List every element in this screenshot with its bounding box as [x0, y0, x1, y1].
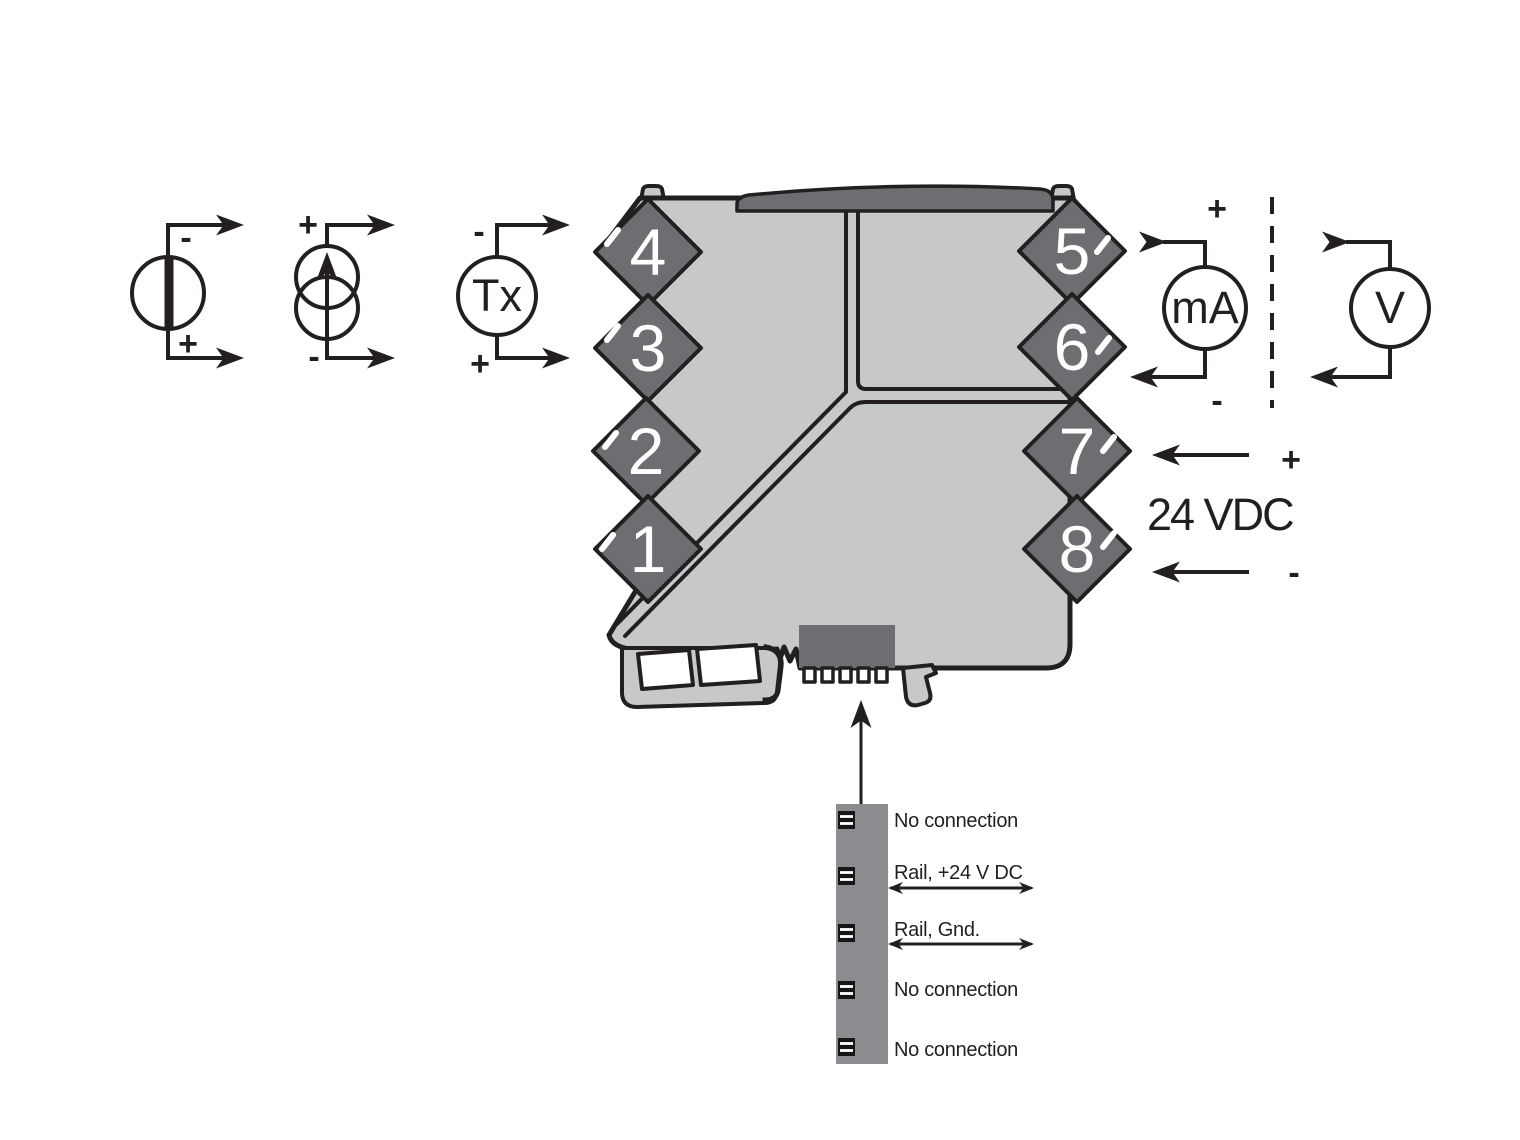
wire [1151, 349, 1205, 377]
polarity-sign: + [470, 345, 490, 383]
polarity-sign: + [1207, 190, 1227, 228]
wire [327, 225, 377, 246]
terminal-number: 2 [628, 414, 665, 488]
milliamp-meter-label: mA [1171, 282, 1239, 333]
bus-pin [822, 668, 833, 682]
bus-pin [876, 668, 887, 682]
rail-pin-label: Rail, +24 V DC [894, 862, 1023, 884]
current-output-symbol: mA + - [1130, 190, 1246, 420]
polarity-sign: - [473, 213, 484, 251]
volt-meter-label: V [1375, 282, 1405, 333]
voltage-output-symbol: V [1310, 232, 1429, 388]
module-top-cap [737, 186, 1053, 211]
wire [168, 225, 226, 257]
wire [1348, 242, 1390, 270]
rail-pin-icon [838, 981, 855, 999]
rail-pin-label: No connection [894, 979, 1018, 1001]
voltage-source-symbol: - + [132, 215, 244, 369]
bus-pin [858, 668, 869, 682]
terminal-number: 4 [630, 215, 667, 289]
rail-pin-label: No connection [894, 810, 1018, 832]
polarity-sign: - [308, 338, 319, 376]
bus-pin [804, 668, 815, 682]
rail-pin-icon [838, 811, 855, 829]
wiring-diagram-page: - + + - Tx - + [0, 0, 1520, 1140]
polarity-sign: - [1211, 382, 1222, 420]
rail-pin-label: No connection [894, 1039, 1018, 1061]
foot-window [638, 650, 693, 689]
bus-connector-socket [799, 625, 895, 668]
wire [1165, 242, 1205, 268]
foot-window [697, 645, 760, 685]
terminal-number: 1 [630, 512, 667, 586]
polarity-sign: - [1288, 554, 1299, 592]
terminal-number: 7 [1059, 414, 1096, 488]
polarity-sign: + [178, 325, 198, 363]
rail-connector-detail: No connection Rail, +24 V DC Rail, Gnd. … [836, 700, 1034, 1064]
transmitter-label: Tx [472, 270, 522, 321]
supply-voltage-label: 24 VDC [1147, 489, 1293, 540]
wire [497, 335, 552, 358]
terminal-number: 6 [1054, 310, 1091, 384]
terminal-number: 8 [1059, 512, 1096, 586]
arrowhead-icon [1139, 232, 1167, 253]
arrowhead-icon [1322, 232, 1350, 253]
rail-hook [903, 665, 936, 705]
rail-pin-icon [838, 867, 855, 885]
transmitter-symbol: Tx - + [458, 213, 570, 383]
power-supply: + 24 VDC - [1147, 441, 1301, 592]
rail-pin-icon [838, 924, 855, 942]
rail-pin-icon [838, 1038, 855, 1056]
wiring-diagram: - + + - Tx - + [0, 0, 1520, 1140]
module: 4 3 2 1 5 6 7 [593, 186, 1130, 707]
bus-pin [840, 668, 851, 682]
polarity-sign: + [298, 206, 318, 244]
terminal-number: 5 [1054, 214, 1091, 288]
polarity-sign: - [180, 219, 191, 257]
wire [1331, 347, 1390, 377]
polarity-sign: + [1281, 441, 1301, 479]
wire [497, 225, 552, 257]
rail-pin-label: Rail, Gnd. [894, 919, 980, 941]
current-source-symbol: + - [296, 206, 395, 376]
terminal-number: 3 [630, 311, 667, 385]
